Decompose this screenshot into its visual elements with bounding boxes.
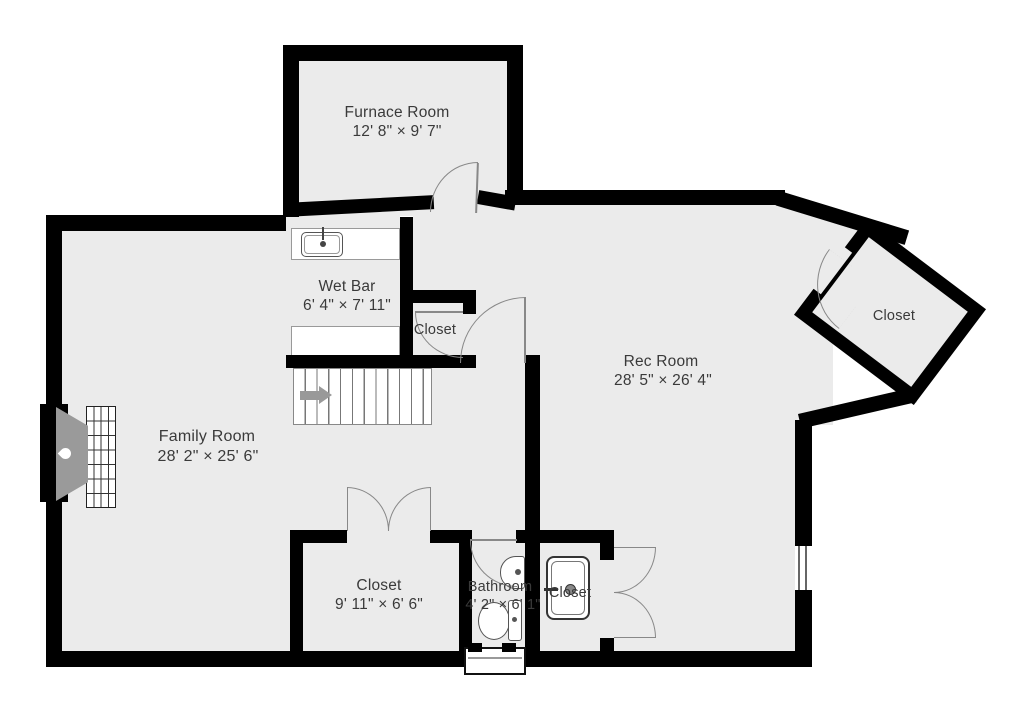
room-dims-rec-room: 28' 5" × 26' 4"	[614, 372, 712, 390]
wall-stairs-top	[286, 355, 476, 368]
window-well-stub-left	[468, 643, 482, 652]
wall-closet-wetbar-stub	[463, 290, 476, 314]
wall-bathroom-top-right	[516, 530, 540, 543]
stairs-direction-arrow-head	[319, 386, 332, 404]
room-label-closet-wetbar: Closet	[414, 322, 456, 338]
wall-furnace-top	[283, 45, 523, 61]
room-dims-bathroom: 4' 2" × 6' 1"	[465, 597, 540, 613]
wall-furnace-right	[507, 45, 523, 197]
room-dims-closet-lower: 9' 11" × 6' 6"	[335, 596, 423, 614]
room-label-closet-lower: Closet	[356, 577, 401, 595]
room-label-bathroom: Bathroom	[468, 579, 532, 595]
wetbar-counter-bottom	[291, 326, 400, 356]
wetbar-sink-icon	[301, 232, 343, 257]
window-well-stub-right	[502, 643, 516, 652]
room-label-family-room: Family Room	[159, 428, 255, 446]
wall-closet-lower-left	[290, 530, 303, 655]
room-dims-wet-bar: 6' 4" × 7' 11"	[303, 297, 391, 315]
room-label-wet-bar: Wet Bar	[318, 278, 375, 296]
wall-utility-closet-right-lower	[600, 638, 614, 655]
room-dims-furnace: 12' 8" × 9' 7"	[352, 123, 441, 141]
wall-rec-top	[505, 190, 785, 205]
closet-wetbar-door-leaf	[415, 311, 463, 313]
wall-closet-lower-top-left	[290, 530, 347, 543]
rec-room-door-leaf	[524, 297, 526, 363]
floor-plan-canvas: Furnace Room 12' 8" × 9' 7" Wet Bar 6' 4…	[0, 0, 1024, 716]
room-label-closet-utility: Closet	[549, 585, 591, 601]
room-label-closet-angled: Closet	[873, 308, 915, 324]
room-label-furnace: Furnace Room	[345, 104, 450, 122]
fireplace-hearth-tiles	[86, 406, 116, 508]
wall-bottom	[46, 651, 812, 667]
bathroom-door-leaf	[470, 539, 517, 541]
room-label-rec-room: Rec Room	[624, 353, 699, 371]
wall-family-top	[46, 215, 286, 231]
stairs-direction-arrow	[300, 391, 319, 400]
toilet-flush-dot	[512, 617, 517, 622]
wall-utility-closet-right-upper	[600, 530, 614, 560]
wall-east-upper	[795, 420, 812, 546]
window-east	[795, 546, 812, 590]
wall-furnace-left	[283, 45, 299, 217]
room-dims-family-room: 28' 2" × 25' 6"	[158, 448, 259, 466]
